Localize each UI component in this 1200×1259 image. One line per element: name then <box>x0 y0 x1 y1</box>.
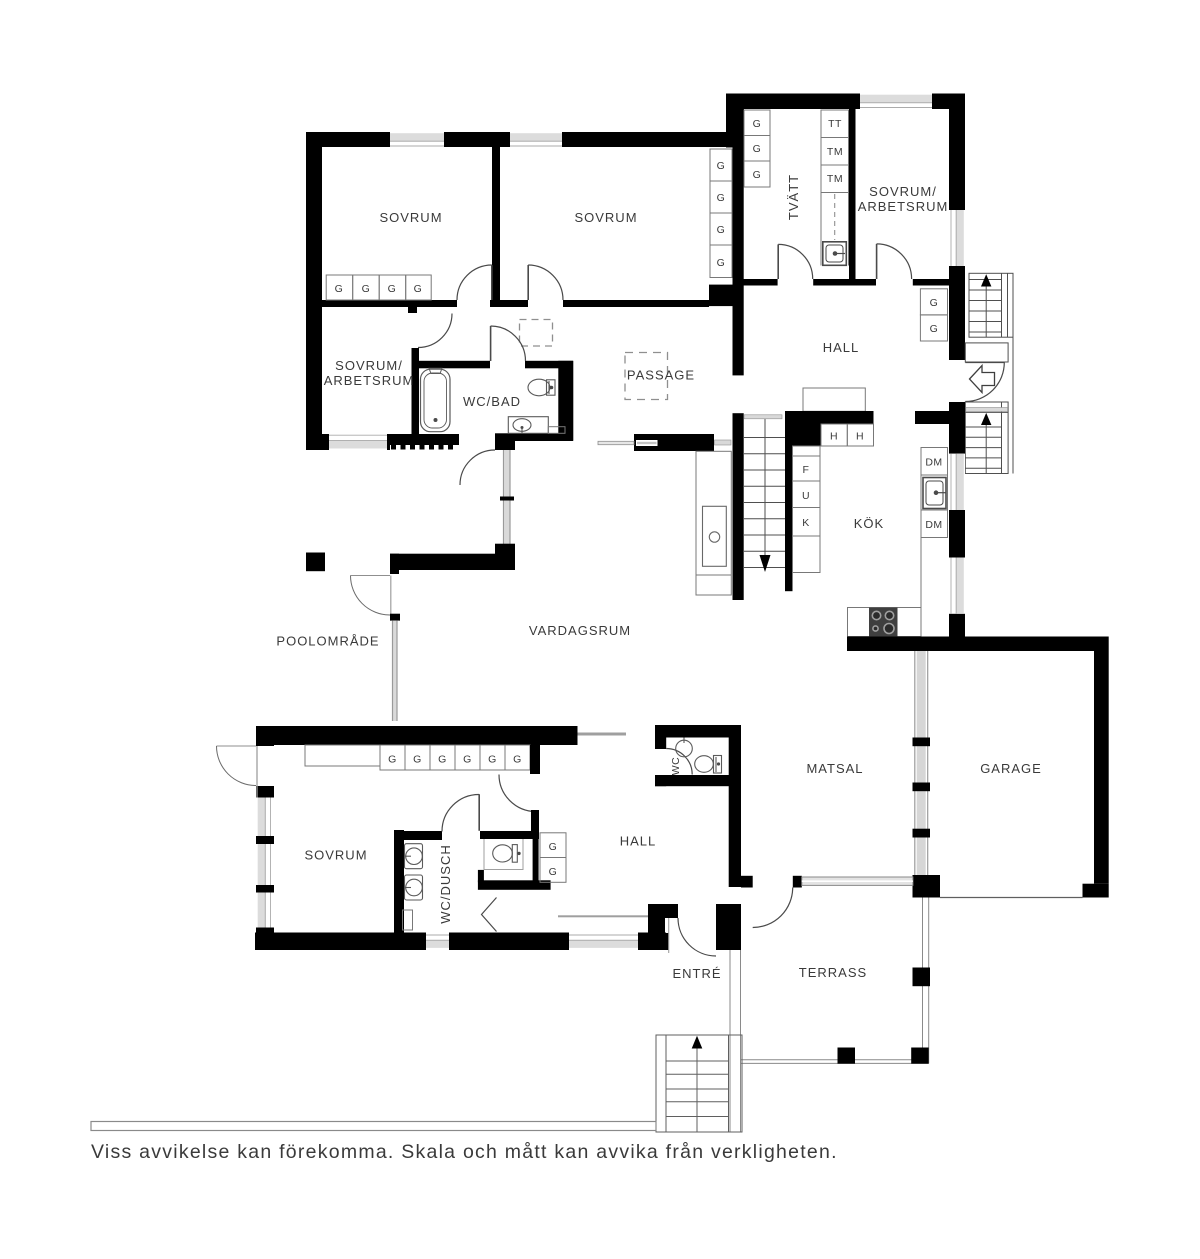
svg-text:G: G <box>930 297 939 309</box>
svg-text:G: G <box>463 754 472 766</box>
svg-text:TM: TM <box>827 146 843 158</box>
svg-text:U: U <box>802 490 810 502</box>
svg-text:KÖK: KÖK <box>854 516 884 531</box>
svg-text:G: G <box>413 754 422 766</box>
svg-text:WC/BAD: WC/BAD <box>463 394 521 409</box>
svg-text:G: G <box>717 160 726 172</box>
svg-text:HALL: HALL <box>823 340 860 355</box>
svg-text:G: G <box>335 283 344 295</box>
svg-text:G: G <box>388 754 397 766</box>
svg-text:F: F <box>803 464 810 476</box>
svg-text:K: K <box>802 517 810 529</box>
svg-text:G: G <box>438 754 447 766</box>
svg-text:ARBETSRUM: ARBETSRUM <box>858 199 949 214</box>
svg-text:G: G <box>753 118 762 130</box>
svg-text:Viss avvikelse kan förekomma.: Viss avvikelse kan förekomma. Skala och … <box>91 1141 838 1163</box>
svg-text:HALL: HALL <box>620 834 657 849</box>
svg-text:DM: DM <box>925 457 942 469</box>
svg-text:H: H <box>856 431 864 443</box>
svg-text:G: G <box>513 754 522 766</box>
svg-text:SOVRUM/: SOVRUM/ <box>869 184 937 199</box>
svg-text:H: H <box>830 431 838 443</box>
svg-text:G: G <box>549 841 558 853</box>
svg-text:SOVRUM: SOVRUM <box>574 210 637 225</box>
svg-text:SOVRUM: SOVRUM <box>379 210 442 225</box>
svg-text:G: G <box>488 754 497 766</box>
svg-text:G: G <box>717 257 726 269</box>
svg-text:ARBETSRUM: ARBETSRUM <box>324 373 415 388</box>
svg-text:G: G <box>930 323 939 335</box>
svg-text:G: G <box>753 169 762 181</box>
svg-text:ENTRÉ: ENTRÉ <box>672 966 721 981</box>
svg-text:MATSAL: MATSAL <box>806 761 863 776</box>
svg-text:G: G <box>753 143 762 155</box>
svg-text:DM: DM <box>925 519 942 531</box>
svg-text:TM: TM <box>827 173 843 185</box>
svg-text:GARAGE: GARAGE <box>980 761 1042 776</box>
svg-text:G: G <box>414 283 423 295</box>
svg-text:TVÄTT: TVÄTT <box>786 174 801 220</box>
svg-text:G: G <box>362 283 371 295</box>
svg-text:SOVRUM/: SOVRUM/ <box>335 358 403 373</box>
svg-text:VARDAGSRUM: VARDAGSRUM <box>529 623 631 638</box>
svg-text:G: G <box>717 192 726 204</box>
svg-text:SOVRUM: SOVRUM <box>304 848 367 863</box>
svg-text:WC/DUSCH: WC/DUSCH <box>438 844 453 924</box>
svg-text:G: G <box>717 224 726 236</box>
svg-text:TERRASS: TERRASS <box>799 965 867 980</box>
svg-text:POOLOMRÅDE: POOLOMRÅDE <box>276 634 379 649</box>
svg-text:WC: WC <box>670 757 682 776</box>
svg-text:G: G <box>549 866 558 878</box>
svg-text:TT: TT <box>828 118 842 130</box>
svg-text:PASSAGE: PASSAGE <box>627 368 695 383</box>
svg-text:G: G <box>388 283 397 295</box>
